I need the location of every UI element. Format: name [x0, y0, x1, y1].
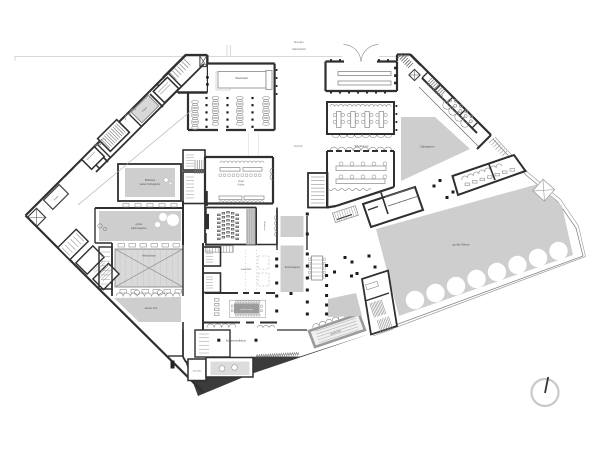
svg-text:Küche: Küche [238, 184, 245, 187]
svg-text:große Wiese: große Wiese [452, 243, 469, 247]
svg-text:Rampe: Rampe [294, 40, 304, 44]
svg-text:Erlebnisgarten: Erlebnisgarten [131, 227, 147, 230]
svg-text:Vorhof: Vorhof [294, 144, 303, 148]
svg-text:große Lounge: große Lounge [240, 309, 253, 311]
svg-text:Cafegarten: Cafegarten [420, 145, 435, 149]
svg-text:Waschhaus: Waschhaus [142, 254, 156, 258]
svg-text:Snack Bar: Snack Bar [193, 370, 202, 373]
svg-text:Lesehof: Lesehof [241, 267, 251, 271]
svg-text:Bücherei: Bücherei [263, 222, 266, 231]
svg-text:Kunstinstallation: Kunstinstallation [226, 339, 247, 343]
svg-text:Marktplatz: Marktplatz [292, 47, 306, 51]
svg-text:Werkstatt: Werkstatt [235, 76, 248, 80]
svg-text:kleiner Schulgarten: kleiner Schulgarten [140, 183, 161, 186]
svg-text:Erlebnisgarten: Erlebnisgarten [285, 266, 301, 269]
svg-text:kleiner Hof: kleiner Hof [145, 306, 158, 310]
svg-text:Bibliothek: Bibliothek [145, 179, 156, 182]
svg-text:großer: großer [135, 223, 142, 226]
